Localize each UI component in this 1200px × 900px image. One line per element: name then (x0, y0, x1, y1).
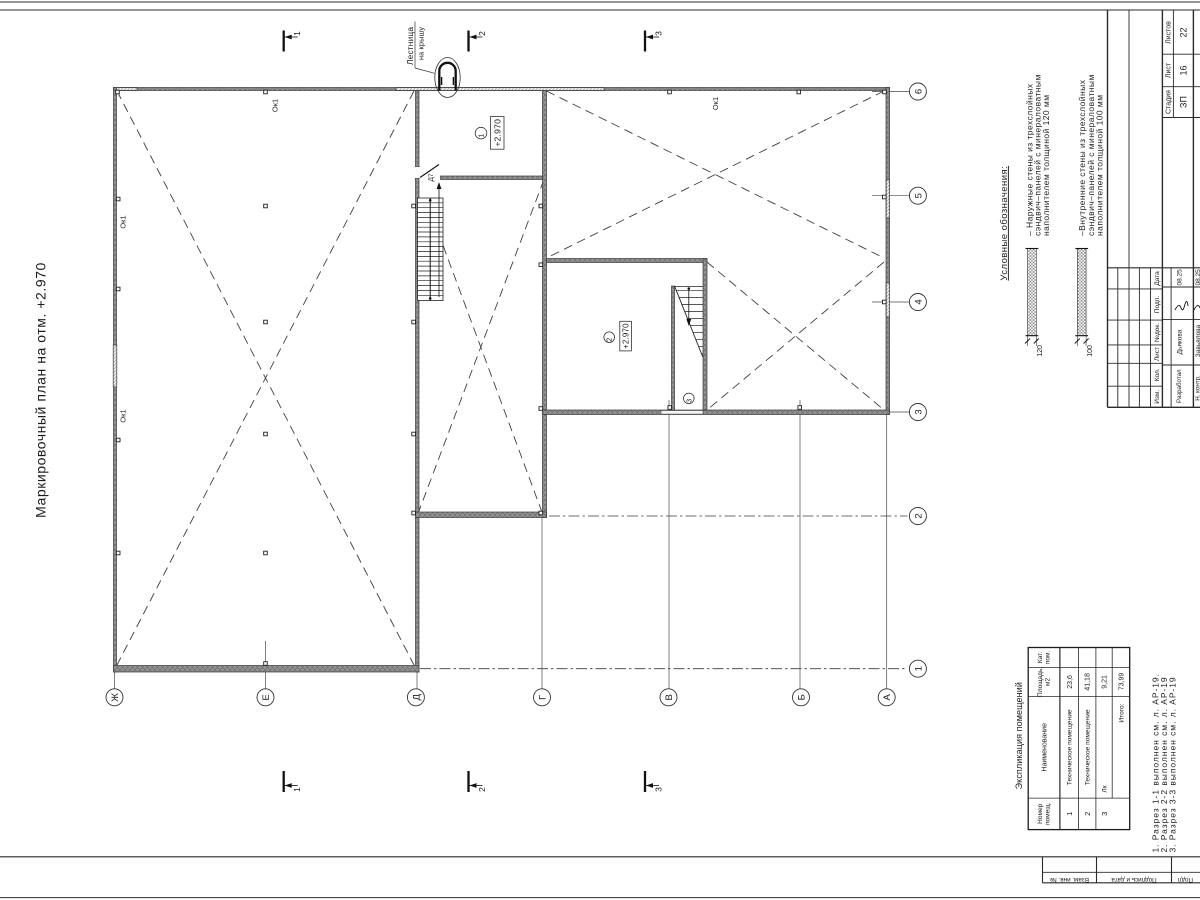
svg-text:Лист: Лист (1154, 347, 1161, 361)
svg-text:2: 2 (607, 338, 614, 342)
svg-text:3: 3 (654, 31, 664, 36)
svg-text:Площадь,: Площадь, (1037, 667, 1044, 697)
svg-text:А: А (882, 693, 893, 700)
svg-text:73,99: 73,99 (1118, 673, 1125, 691)
svg-text:120: 120 (1037, 345, 1044, 357)
svg-text:№док.: №док. (1154, 323, 1161, 342)
svg-text:Разработал: Разработал (1176, 369, 1183, 403)
svg-text:1: 1 (479, 134, 486, 138)
svg-text:Подп: Подп (1178, 876, 1193, 883)
svg-text:Листов: Листов (1165, 21, 1172, 44)
svg-text:Ок1: Ок1 (119, 409, 128, 422)
svg-text:100: 100 (1087, 345, 1094, 357)
svg-text:Лк: Лк (1101, 785, 1108, 792)
svg-text:Итого:: Итого: (1118, 703, 1125, 722)
svg-text:3: 3 (1100, 812, 1109, 816)
svg-text:4: 4 (913, 299, 924, 304)
svg-text:1: 1 (1065, 812, 1074, 816)
svg-text:наполнителем толщиной 120 мм: наполнителем толщиной 120 мм (1041, 94, 1051, 236)
svg-text:1: 1 (913, 666, 924, 671)
svg-text:2: 2 (913, 513, 924, 518)
svg-text:3. Разрез 3-3 выполнен см. л.: 3. Разрез 3-3 выполнен см. л. АР-19 (1168, 676, 1178, 852)
svg-text:Е: Е (261, 694, 272, 700)
svg-text:Н. контр.: Н. контр. (1195, 375, 1200, 401)
svg-text:Кат.: Кат. (1037, 652, 1044, 664)
svg-text:Ок1: Ок1 (711, 97, 720, 110)
svg-text:Условные обозначения:: Условные обозначения: (999, 166, 1010, 281)
svg-text:+2.970: +2.970 (492, 119, 502, 147)
svg-text:2: 2 (1083, 812, 1092, 816)
svg-text:1: 1 (292, 31, 302, 36)
svg-text:Дата: Дата (1154, 271, 1161, 286)
svg-text:3: 3 (654, 787, 664, 792)
svg-text:В: В (664, 694, 675, 700)
svg-text:Г: Г (537, 695, 548, 700)
svg-text:Д7: Д7 (428, 173, 435, 181)
svg-text:Дьякова: Дьякова (1176, 329, 1183, 354)
svg-text:6: 6 (913, 89, 924, 94)
svg-text:5: 5 (913, 193, 924, 198)
svg-text:Наименование: Наименование (1042, 723, 1049, 772)
svg-text:23,6: 23,6 (1067, 675, 1074, 689)
svg-text:3: 3 (686, 399, 693, 403)
svg-text:08.25: 08.25 (1195, 269, 1200, 286)
svg-text:1: 1 (292, 787, 302, 792)
svg-text:Экспликация помещений: Экспликация помещений (1014, 682, 1024, 789)
svg-text:ЗП: ЗП (1179, 96, 1189, 108)
svg-text:на крышу: на крышу (416, 27, 425, 60)
svg-text:Взам. инв. №: Взам. инв. № (1050, 876, 1089, 883)
svg-text:пом.: пом. (1044, 651, 1051, 665)
svg-text:Маркировочный план на отм. +2.: Маркировочный план на отм. +2.970 (33, 262, 49, 518)
svg-text:Номер: Номер (1037, 803, 1044, 823)
svg-text:Изм.: Изм. (1154, 390, 1161, 404)
svg-text:Ок1: Ок1 (271, 99, 280, 112)
svg-text:08.25: 08.25 (1176, 269, 1183, 286)
svg-text:Ж: Ж (110, 693, 121, 702)
svg-text:2: 2 (477, 787, 487, 792)
svg-text:Техническое помещение: Техническое помещение (1085, 709, 1092, 785)
svg-text:Стадия: Стадия (1165, 90, 1172, 114)
svg-text:16: 16 (1179, 65, 1189, 75)
svg-text:Б: Б (796, 694, 807, 700)
svg-text:+2.970: +2.970 (621, 323, 630, 349)
svg-text:2: 2 (477, 31, 487, 36)
svg-text:Кол.: Кол. (1154, 368, 1161, 381)
svg-text:Д: Д (411, 694, 422, 701)
svg-text:Лист: Лист (1165, 62, 1172, 78)
svg-text:помещ.: помещ. (1044, 802, 1051, 825)
svg-text:Ок1: Ок1 (119, 215, 128, 228)
svg-text:Техническое помещение: Техническое помещение (1067, 709, 1074, 785)
svg-text:3: 3 (913, 409, 924, 414)
svg-text:41,18: 41,18 (1085, 673, 1092, 691)
svg-text:Подп.: Подп. (1154, 296, 1161, 313)
svg-text:Лестница: Лестница (405, 27, 415, 65)
svg-text:22: 22 (1179, 27, 1189, 37)
svg-text:наполнителем толщиной 100 мм: наполнителем толщиной 100 мм (1095, 94, 1105, 236)
svg-text:Подпись и дата: Подпись и дата (1111, 876, 1157, 883)
svg-text:9,21: 9,21 (1102, 675, 1109, 689)
svg-text:Завьялова: Завьялова (1195, 324, 1200, 357)
svg-text:м2: м2 (1044, 677, 1051, 685)
